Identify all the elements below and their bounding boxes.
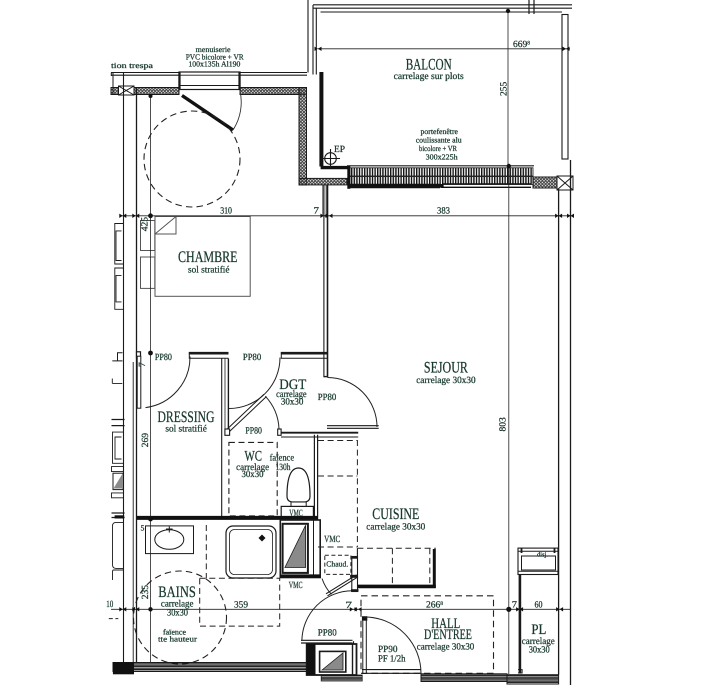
svg-text:235: 235 (141, 585, 151, 600)
svg-text:PP80: PP80 (318, 393, 337, 403)
svg-text:359: 359 (234, 601, 248, 611)
svg-text:2668: 2668 (426, 600, 443, 610)
svg-text:VMC: VMC (324, 535, 340, 545)
svg-text:BAINS: BAINS (158, 584, 196, 601)
svg-text:sol stratifié: sol stratifié (188, 266, 230, 276)
svg-text:PP80: PP80 (318, 629, 337, 639)
svg-text:CHAMBRE: CHAMBRE (178, 249, 238, 266)
svg-text:383: 383 (437, 207, 450, 217)
svg-text:130h: 130h (276, 463, 291, 473)
svg-text:30x30: 30x30 (529, 646, 550, 656)
svg-text:tion trespa: tion trespa (111, 61, 154, 70)
svg-text:7: 7 (138, 362, 148, 367)
svg-text:30x30: 30x30 (281, 397, 304, 407)
svg-text:PP80: PP80 (243, 353, 262, 363)
svg-text:carrelage sur plots: carrelage sur plots (394, 72, 464, 82)
svg-text:803: 803 (499, 417, 509, 432)
svg-text:100x135h Al190: 100x135h Al190 (188, 59, 240, 68)
svg-text:Chaud.: Chaud. (326, 560, 348, 569)
svg-text:SEJOUR: SEJOUR (424, 359, 468, 376)
svg-text:10: 10 (106, 600, 113, 610)
svg-text:7: 7 (512, 601, 517, 611)
svg-text:30x30: 30x30 (167, 609, 188, 619)
svg-text:5: 5 (141, 524, 145, 533)
svg-text:425: 425 (141, 217, 151, 232)
svg-text:CUISINE: CUISINE (372, 506, 419, 523)
svg-text:DRESSING: DRESSING (158, 409, 215, 426)
svg-text:faïence: faïence (270, 454, 295, 464)
svg-text:PP80: PP80 (245, 426, 262, 436)
svg-text:PF 1/2h: PF 1/2h (378, 654, 406, 664)
svg-text:carrelage 30x30: carrelage 30x30 (416, 376, 476, 386)
svg-text:disj.: disj. (537, 552, 548, 559)
svg-text:300x225h: 300x225h (426, 153, 458, 162)
svg-text:sol stratifié: sol stratifié (165, 425, 207, 435)
svg-text:30x30: 30x30 (242, 470, 264, 480)
svg-text:D'ENTREE: D'ENTREE (424, 627, 472, 643)
svg-text:VMC: VMC (289, 581, 303, 591)
svg-text:carrelage 30x30: carrelage 30x30 (417, 642, 475, 652)
svg-text:PL: PL (531, 622, 546, 638)
svg-text:PP80: PP80 (155, 353, 172, 363)
svg-text:7: 7 (314, 207, 320, 217)
svg-text:7: 7 (345, 601, 352, 611)
svg-text:60: 60 (535, 601, 543, 611)
svg-text:VMC: VMC (289, 509, 303, 519)
svg-text:255: 255 (500, 82, 510, 97)
svg-text:310: 310 (220, 206, 232, 216)
svg-text:EP: EP (334, 145, 345, 155)
svg-text:tte hauteur: tte hauteur (158, 635, 197, 644)
svg-text:carrelage 30x30: carrelage 30x30 (366, 523, 425, 533)
svg-text:269: 269 (141, 433, 151, 448)
svg-text:BALCON: BALCON (406, 57, 452, 74)
